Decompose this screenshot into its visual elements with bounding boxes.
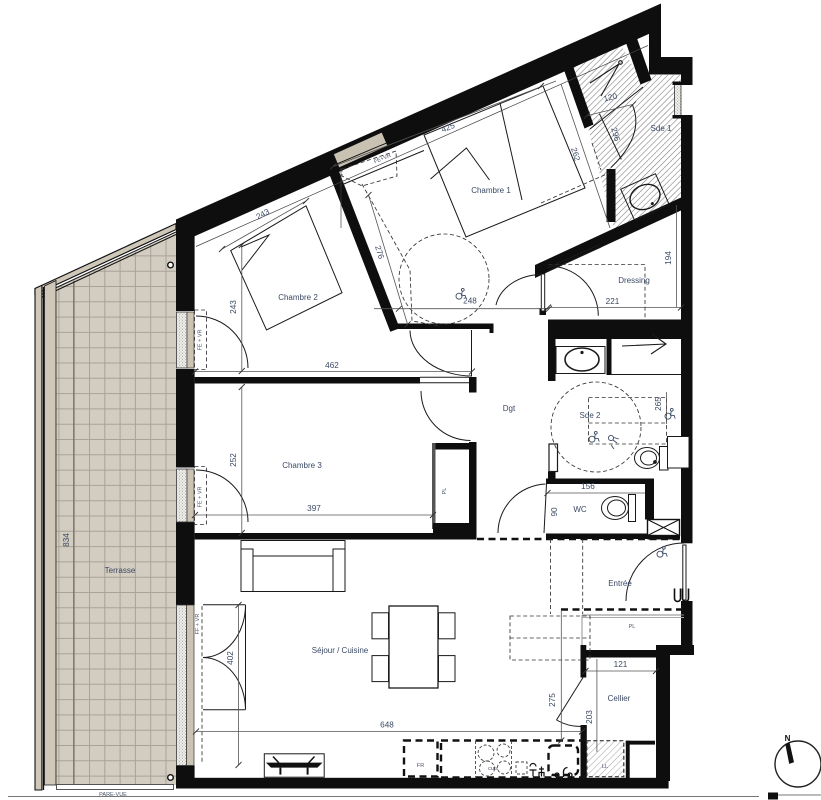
svg-text:194: 194 <box>664 251 673 265</box>
svg-text:402: 402 <box>226 651 235 665</box>
svg-text:90: 90 <box>550 507 559 517</box>
svg-text:PL: PL <box>442 488 448 495</box>
svg-text:FE + VR: FE + VR <box>198 330 204 351</box>
svg-text:Séjour / Cuisine: Séjour / Cuisine <box>312 646 369 655</box>
svg-text:cuis: cuis <box>488 766 498 772</box>
svg-text:Sde 1: Sde 1 <box>651 124 672 133</box>
svg-text:156: 156 <box>581 482 595 491</box>
svg-text:N: N <box>785 734 791 743</box>
svg-text:121: 121 <box>614 660 628 669</box>
svg-text:FF + VR: FF + VR <box>195 614 201 635</box>
svg-text:203: 203 <box>585 710 594 724</box>
svg-text:Chambre 2: Chambre 2 <box>278 293 318 302</box>
svg-text:462: 462 <box>325 361 339 370</box>
svg-text:Dgt: Dgt <box>503 404 516 413</box>
svg-text:Chambre 3: Chambre 3 <box>282 461 322 470</box>
svg-text:834: 834 <box>62 533 71 547</box>
svg-text:PARE-VUE: PARE-VUE <box>99 792 127 798</box>
svg-text:648: 648 <box>380 721 394 730</box>
svg-text:248: 248 <box>463 297 477 306</box>
svg-text:397: 397 <box>307 504 321 513</box>
svg-text:221: 221 <box>606 297 620 306</box>
svg-text:Cellier: Cellier <box>608 694 631 703</box>
svg-text:Sde 2: Sde 2 <box>580 411 601 420</box>
svg-text:WC: WC <box>573 505 587 514</box>
svg-text:265: 265 <box>654 397 663 411</box>
svg-text:FR: FR <box>417 763 424 769</box>
svg-text:Terrasse: Terrasse <box>105 566 136 575</box>
svg-text:252: 252 <box>229 453 238 467</box>
svg-text:PL: PL <box>629 624 636 630</box>
svg-text:Dressing: Dressing <box>618 276 650 285</box>
svg-text:275: 275 <box>548 693 557 707</box>
svg-text:Entrée: Entrée <box>608 579 632 588</box>
svg-text:LL: LL <box>602 764 608 770</box>
svg-text:243: 243 <box>229 300 238 314</box>
svg-text:Chambre 1: Chambre 1 <box>471 186 511 195</box>
svg-text:FE + VR: FE + VR <box>198 487 204 508</box>
